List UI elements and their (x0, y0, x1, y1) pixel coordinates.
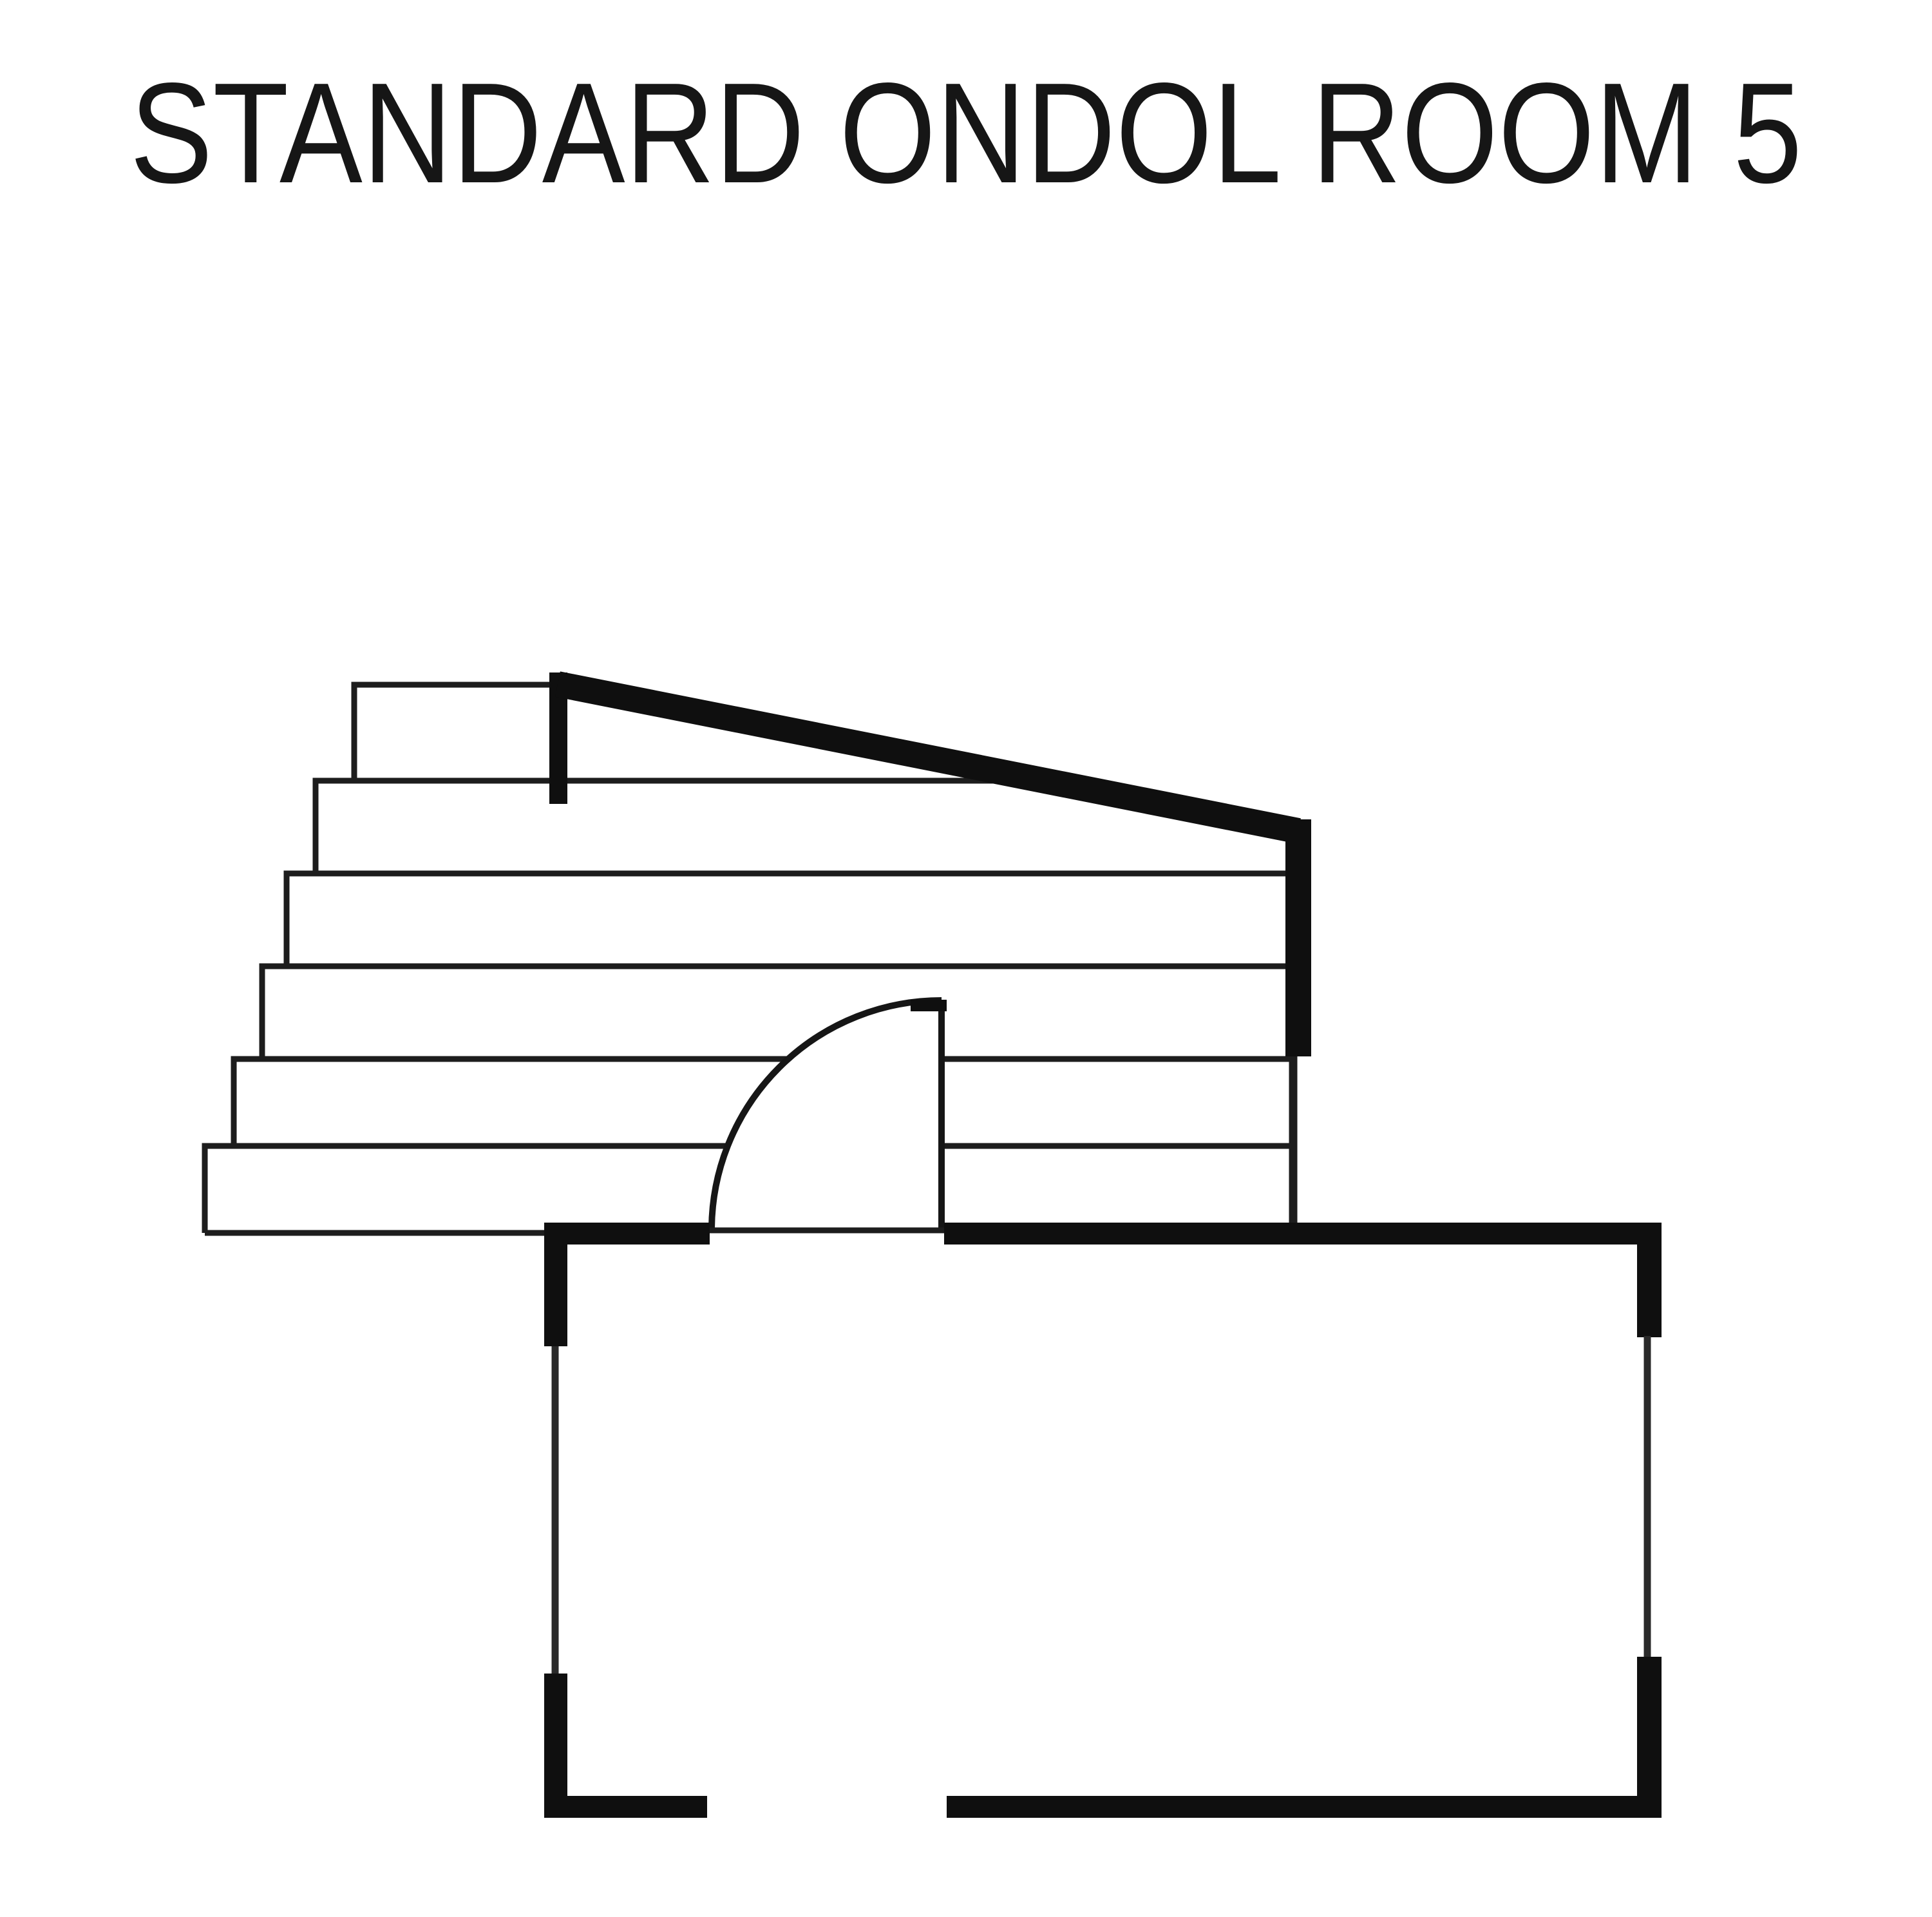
room-wall-right-upper-segment (1637, 1223, 1662, 1337)
room-wall-right-lower-segment (1637, 1657, 1662, 1818)
handrail-diagonal (558, 684, 1298, 831)
stair-step-3-outline (287, 873, 1287, 966)
room-wall-top-right-segment (944, 1223, 1662, 1245)
door (708, 1000, 947, 1230)
room-wall-top-left-segment (547, 1223, 710, 1245)
room-wall-bottom-left-segment (544, 1796, 707, 1818)
page: STANDARD ONDOL ROOM 5 (0, 0, 1932, 1917)
room-wall-left-upper-segment (544, 1223, 567, 1346)
stair-step-2-outline (316, 781, 1005, 873)
door-swing-fill (712, 1000, 942, 1230)
floor-plan-drawing (0, 0, 1932, 1917)
room-wall-bottom-right-segment (947, 1796, 1662, 1818)
stair-step-1-outline (354, 685, 553, 781)
room-walls (544, 1223, 1662, 1818)
stair-right-side-wall (1285, 819, 1311, 1056)
stair-step-4-outline (262, 966, 1287, 1059)
